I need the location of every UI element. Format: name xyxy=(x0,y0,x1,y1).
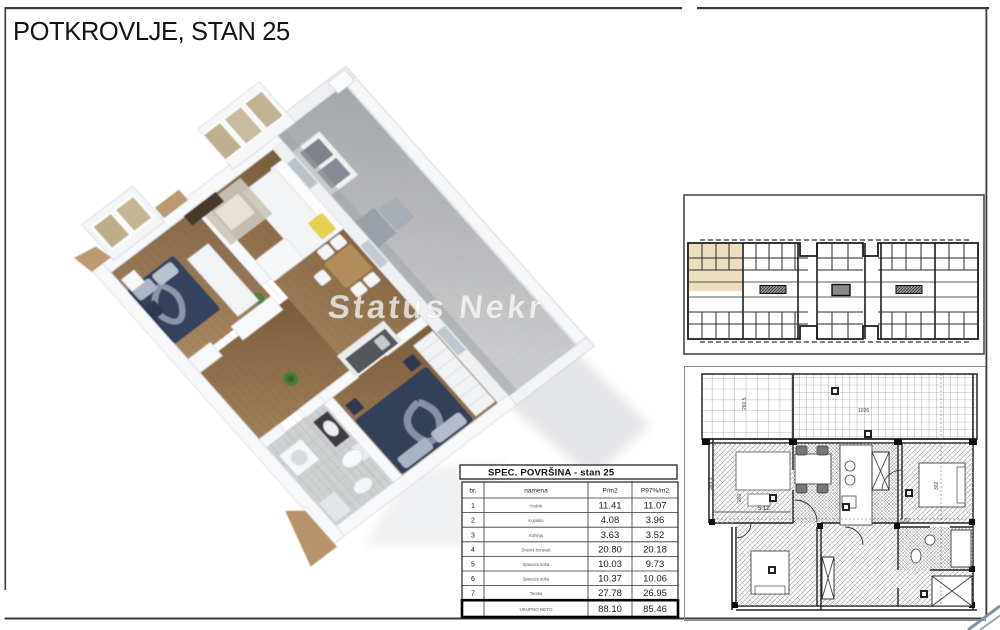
svg-text:POTKROVLJE, STAN 25: POTKROVLJE, STAN 25 xyxy=(13,18,290,46)
svg-text:365.5: 365.5 xyxy=(708,477,714,490)
svg-text:Kuhinja: Kuhinja xyxy=(529,533,544,538)
svg-text:9.73: 9.73 xyxy=(646,559,665,570)
svg-text:Kupatilo: Kupatilo xyxy=(528,518,544,523)
svg-text:SPEC. POVRŠINA - stan 25: SPEC. POVRŠINA - stan 25 xyxy=(488,467,615,479)
svg-text:P/m2: P/m2 xyxy=(602,488,618,495)
svg-text:88.10: 88.10 xyxy=(598,604,622,615)
svg-text:26.95: 26.95 xyxy=(643,588,667,599)
svg-text:br.: br. xyxy=(469,488,476,495)
svg-text:Hodnik: Hodnik xyxy=(529,504,543,509)
svg-text:20.80: 20.80 xyxy=(598,544,622,555)
svg-text:Dnevni boravak: Dnevni boravak xyxy=(521,547,551,552)
svg-text:4.08: 4.08 xyxy=(601,515,620,526)
svg-text:5.12: 5.12 xyxy=(758,506,770,512)
svg-text:20.18: 20.18 xyxy=(643,544,667,555)
svg-text:3.63: 3.63 xyxy=(601,530,620,541)
svg-text:Spavaća soba: Spavaća soba xyxy=(523,562,550,567)
svg-text:5: 5 xyxy=(471,562,475,569)
svg-text:Spavaća soba: Spavaća soba xyxy=(523,577,550,582)
svg-text:10.06: 10.06 xyxy=(643,574,667,585)
svg-text:27.78: 27.78 xyxy=(598,588,622,599)
svg-text:Status Nekr: Status Nekr xyxy=(326,289,546,326)
svg-text:3.96: 3.96 xyxy=(646,515,665,526)
svg-text:260.5: 260.5 xyxy=(742,397,748,410)
svg-text:1026: 1026 xyxy=(858,408,869,414)
svg-text:2: 2 xyxy=(471,518,475,525)
svg-text:4: 4 xyxy=(471,547,475,554)
svg-text:10.03: 10.03 xyxy=(598,559,622,570)
svg-text:3: 3 xyxy=(471,532,475,539)
svg-text:260: 260 xyxy=(737,493,743,502)
svg-text:10.37: 10.37 xyxy=(598,574,622,585)
svg-text:P97%/m2: P97%/m2 xyxy=(641,488,670,495)
svg-text:7: 7 xyxy=(471,591,475,598)
svg-text:namena: namena xyxy=(524,488,548,495)
svg-text:6: 6 xyxy=(471,576,475,583)
svg-text:11.07: 11.07 xyxy=(643,501,666,512)
svg-text:Terasa: Terasa xyxy=(530,591,543,596)
svg-text:5.02: 5.02 xyxy=(900,518,910,524)
svg-text:302: 302 xyxy=(934,481,940,490)
svg-text:85.46: 85.46 xyxy=(643,604,667,615)
svg-text:3.52: 3.52 xyxy=(646,530,665,541)
svg-text:11.41: 11.41 xyxy=(598,501,621,512)
svg-text:UKUPNO NETO: UKUPNO NETO xyxy=(520,607,553,612)
svg-text:1: 1 xyxy=(471,503,475,510)
